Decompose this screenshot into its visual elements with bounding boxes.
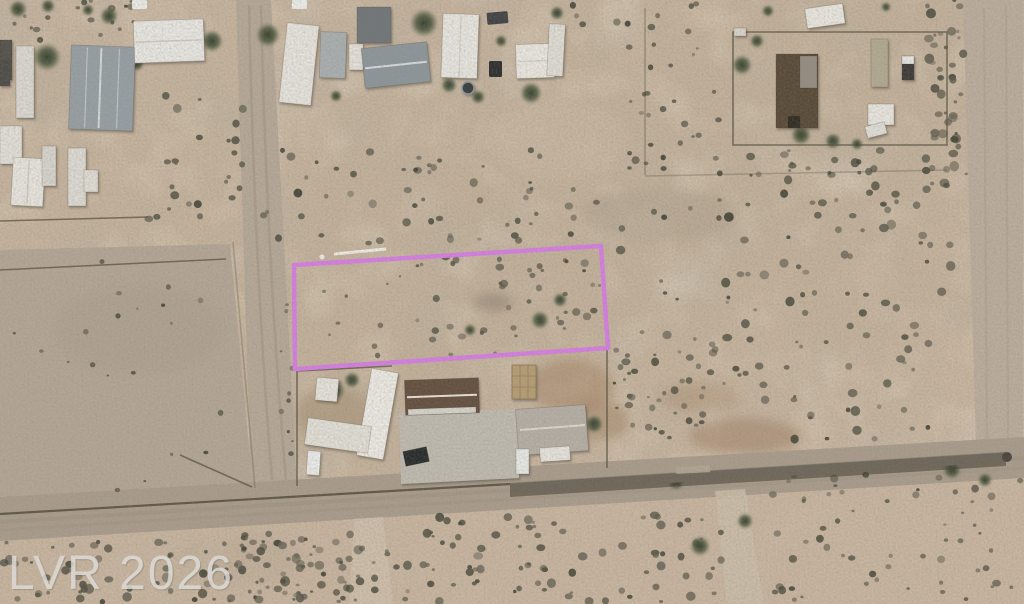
satellite-scene (0, 0, 1024, 604)
aerial-photo: LVR 2026 (0, 0, 1024, 604)
mls-watermark: LVR 2026 (8, 546, 234, 601)
photo-grain (0, 0, 1024, 604)
